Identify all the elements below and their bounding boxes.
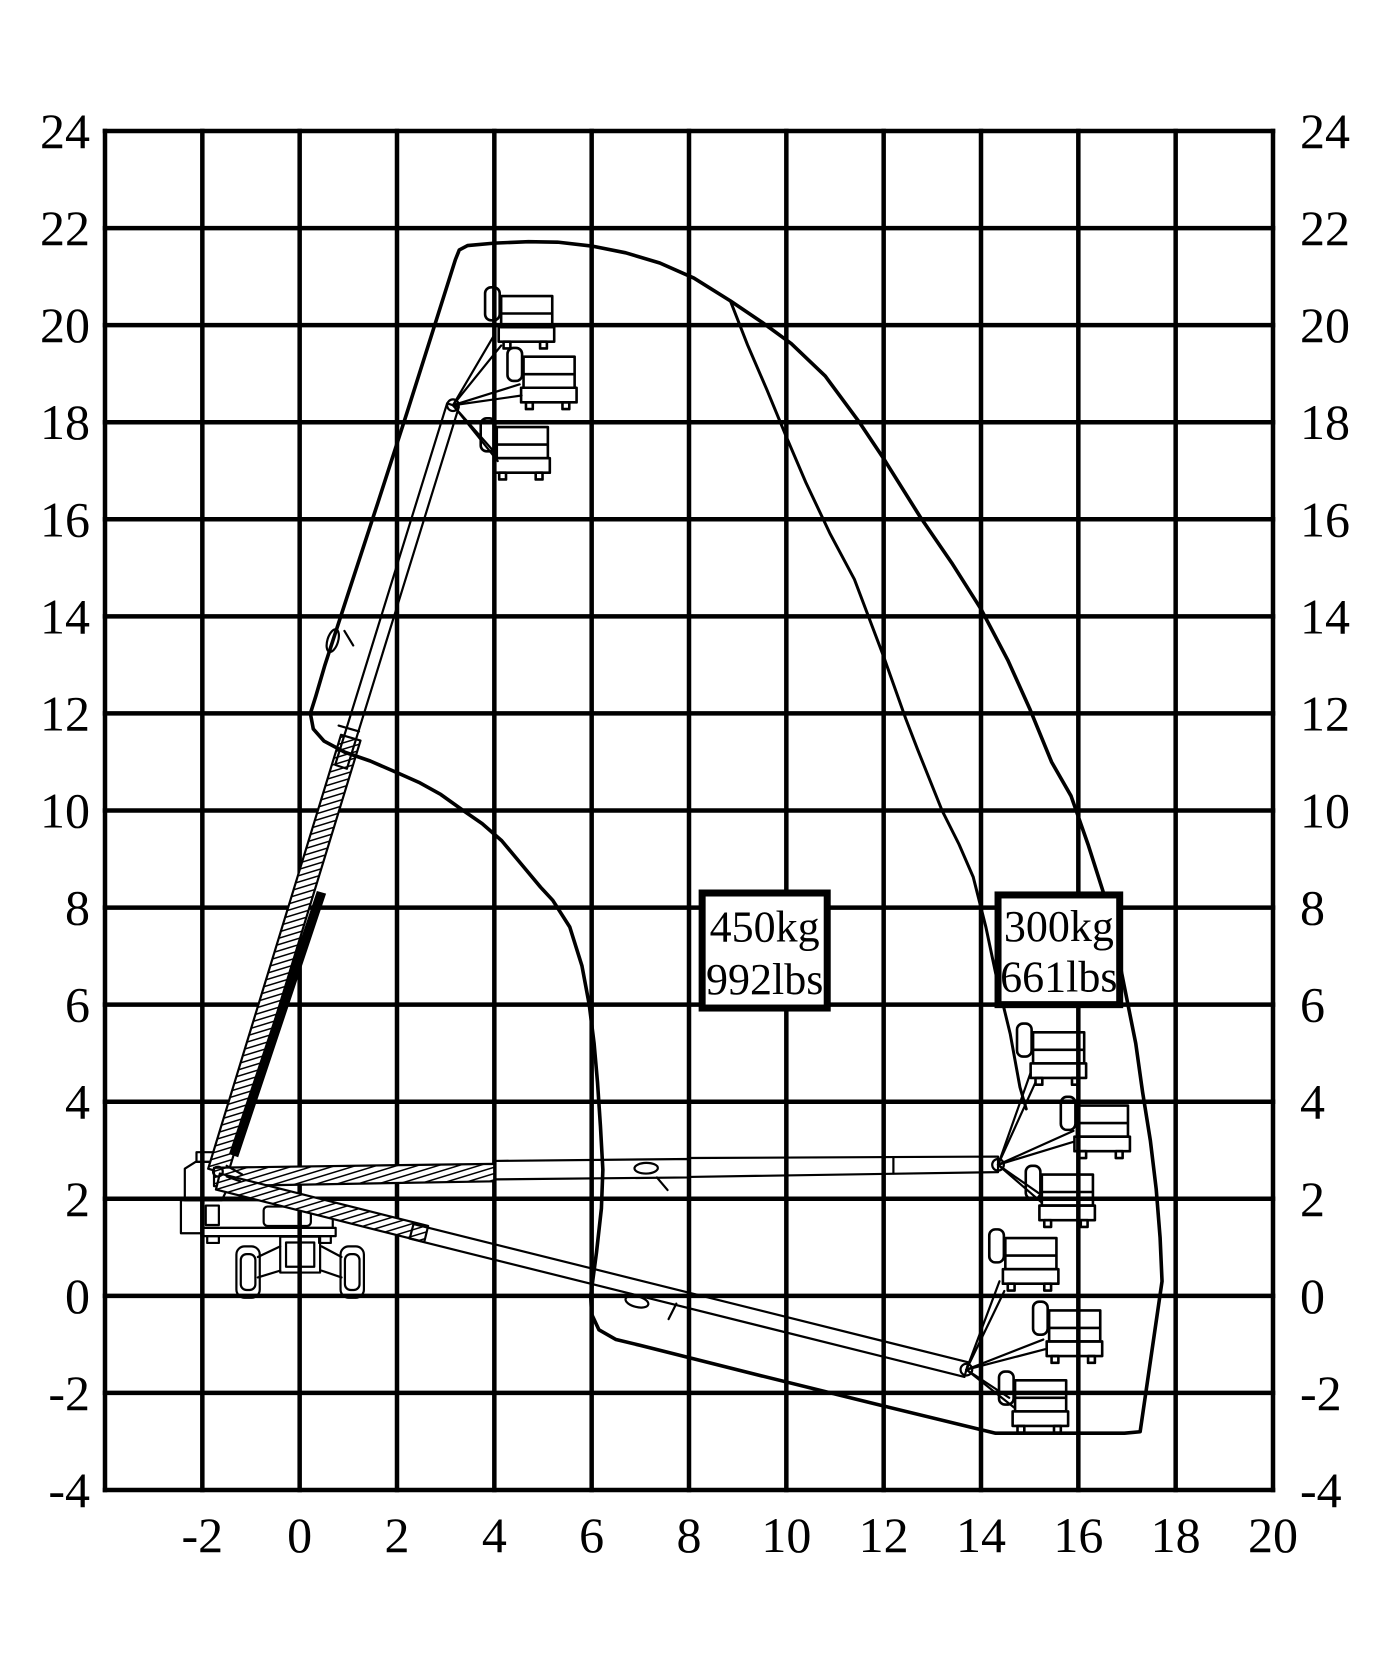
platform-basket xyxy=(1033,1302,1102,1363)
capacity-300-lbs-label: 661lbs xyxy=(1000,952,1117,1001)
machine-part xyxy=(345,1254,360,1290)
x-axis-tick: 14 xyxy=(956,1507,1006,1563)
basket-floor xyxy=(1039,1206,1094,1221)
y-axis-tick-right: 20 xyxy=(1300,297,1350,353)
basket-foot xyxy=(1088,1356,1095,1363)
y-axis-tick-right: 16 xyxy=(1300,491,1350,547)
y-axis-tick-right: 2 xyxy=(1300,1171,1325,1227)
machine-link xyxy=(258,1271,280,1278)
boom-lift-envelope-chart: 2424222220201818161614141212101088664422… xyxy=(0,0,1400,1680)
y-axis-tick-left: 10 xyxy=(40,783,90,839)
machine-part xyxy=(207,1236,219,1243)
load-chart-svg: 2424222220201818161614141212101088664422… xyxy=(0,0,1400,1680)
machine-link xyxy=(453,405,498,461)
page: { "figure": { "width": 1400, "height": 1… xyxy=(0,0,1400,1680)
basket-rail xyxy=(501,296,552,327)
platform-basket xyxy=(507,348,576,409)
y-axis-tick-right: -4 xyxy=(1300,1462,1342,1518)
basket-backrest xyxy=(989,1229,1004,1262)
y-axis-tick-left: 6 xyxy=(65,977,90,1033)
basket-backrest xyxy=(999,1372,1014,1405)
machine-part xyxy=(201,1228,335,1236)
x-axis-tick: 8 xyxy=(677,1507,702,1563)
basket-foot xyxy=(1036,1078,1043,1085)
y-axis-tick-left: 0 xyxy=(65,1268,90,1324)
y-axis-tick-right: 14 xyxy=(1300,588,1350,644)
machine-link xyxy=(669,1304,677,1320)
machine-link xyxy=(998,1142,1074,1165)
basket-rail xyxy=(1015,1380,1066,1411)
basket-foot xyxy=(1044,1284,1051,1291)
y-axis-tick-left: 24 xyxy=(40,103,90,159)
basket-foot xyxy=(499,473,506,480)
y-axis-tick-left: 20 xyxy=(40,297,90,353)
y-axis-tick-right: 8 xyxy=(1300,880,1325,936)
machine-part xyxy=(689,1157,998,1177)
x-axis-tick: 18 xyxy=(1151,1507,1201,1563)
y-axis-tick-left: 8 xyxy=(65,880,90,936)
y-axis-tick-left: -2 xyxy=(48,1365,90,1421)
y-axis-tick-right: 12 xyxy=(1300,685,1350,741)
basket-backrest xyxy=(1017,1024,1032,1057)
x-axis-tick: 10 xyxy=(761,1507,811,1563)
machine-link xyxy=(322,1246,342,1257)
x-axis-tick: 20 xyxy=(1248,1507,1298,1563)
capacity-450-kg-label: 450kg xyxy=(710,902,820,951)
x-axis-tick: 2 xyxy=(385,1507,410,1563)
x-axis-tick: 4 xyxy=(482,1507,507,1563)
x-axis-tick: 12 xyxy=(859,1507,909,1563)
basket-backrest xyxy=(507,348,522,381)
basket-floor xyxy=(494,458,549,473)
machine-link xyxy=(966,1349,1045,1369)
basket-foot xyxy=(1008,1284,1015,1291)
boom-lift-drawing xyxy=(181,287,1130,1432)
basket-foot xyxy=(1072,1078,1079,1085)
machine-link xyxy=(657,1177,668,1190)
y-axis-tick-right: 10 xyxy=(1300,783,1350,839)
basket-foot xyxy=(562,402,569,409)
y-axis-tick-left: 2 xyxy=(65,1171,90,1227)
machine-link xyxy=(966,1370,1014,1408)
y-axis-tick-left: 12 xyxy=(40,685,90,741)
basket-floor xyxy=(1013,1411,1068,1426)
basket-foot xyxy=(1116,1151,1123,1158)
y-axis-tick-right: 18 xyxy=(1300,394,1350,450)
capacity-badge-300kg: 300kg 661lbs xyxy=(998,895,1120,1005)
y-axis-tick-right: 6 xyxy=(1300,977,1325,1033)
y-axis-tick-right: 4 xyxy=(1300,1074,1325,1130)
machine-link xyxy=(322,1271,342,1278)
machine-part xyxy=(230,892,326,1157)
y-axis-tick-left: 14 xyxy=(40,588,90,644)
basket-foot xyxy=(540,342,547,349)
basket-foot xyxy=(1079,1151,1086,1158)
y-axis-tick-left: 4 xyxy=(65,1074,90,1130)
basket-floor xyxy=(1047,1341,1102,1356)
machine-link xyxy=(258,1246,280,1257)
y-axis-tick-right: 0 xyxy=(1300,1268,1325,1324)
y-axis-tick-left: -4 xyxy=(48,1462,90,1518)
x-axis-tick: 6 xyxy=(579,1507,604,1563)
boom-hole xyxy=(634,1163,658,1174)
platform-basket xyxy=(1061,1097,1130,1158)
basket-rail xyxy=(1077,1106,1128,1137)
machine-part xyxy=(206,1206,219,1225)
machine-link xyxy=(339,726,359,732)
platform-basket xyxy=(999,1372,1068,1433)
y-axis-tick-right: -2 xyxy=(1300,1365,1342,1421)
x-axis-tick: 16 xyxy=(1053,1507,1103,1563)
y-axis-tick-left: 18 xyxy=(40,394,90,450)
basket-rail xyxy=(1049,1310,1100,1341)
basket-rail xyxy=(497,427,548,458)
machine-part xyxy=(241,1254,256,1290)
machine-part xyxy=(208,735,360,1175)
grid xyxy=(105,131,1273,1490)
basket-foot xyxy=(1081,1220,1088,1227)
x-axis-tick: 0 xyxy=(287,1507,312,1563)
capacity-300-kg-label: 300kg xyxy=(1004,902,1114,951)
basket-foot xyxy=(536,473,543,480)
basket-floor xyxy=(1074,1137,1129,1152)
machine-part xyxy=(181,1200,203,1233)
y-axis-tick-right: 22 xyxy=(1300,200,1350,256)
basket-backrest xyxy=(1033,1302,1048,1335)
y-axis-tick-right: 24 xyxy=(1300,103,1350,159)
basket-rail xyxy=(524,357,575,388)
basket-foot xyxy=(526,402,533,409)
basket-foot xyxy=(1052,1356,1059,1363)
y-axis-tick-left: 16 xyxy=(40,491,90,547)
x-axis-tick: -2 xyxy=(182,1507,224,1563)
y-axis-tick-left: 22 xyxy=(40,200,90,256)
basket-foot xyxy=(1044,1220,1051,1227)
platform-basket xyxy=(1017,1024,1086,1085)
basket-rail xyxy=(1005,1238,1056,1269)
machine-link xyxy=(998,1082,1035,1165)
machine-link xyxy=(998,1073,1031,1165)
basket-foot xyxy=(504,342,511,349)
basket-floor xyxy=(521,388,576,403)
machine-link xyxy=(344,631,353,646)
machine-link xyxy=(453,396,522,406)
basket-floor xyxy=(1003,1269,1058,1284)
capacity-badge-450kg: 450kg 992lbs xyxy=(702,893,827,1008)
basket-floor xyxy=(499,327,554,342)
capacity-450-lbs-label: 992lbs xyxy=(706,955,823,1004)
